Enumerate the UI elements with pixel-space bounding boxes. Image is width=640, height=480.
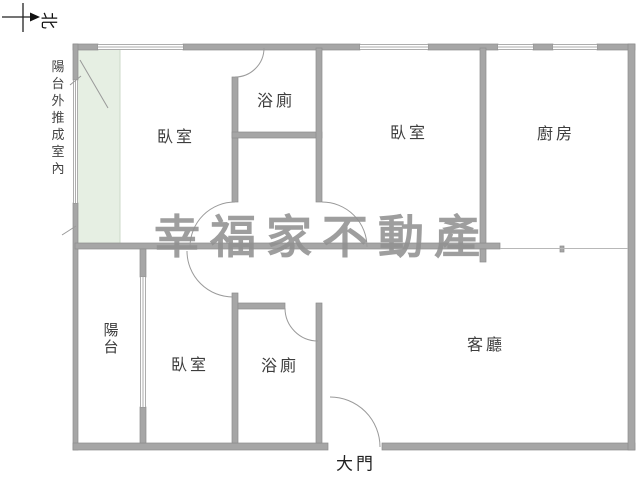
agency-watermark: 幸福家不動產 bbox=[154, 214, 490, 260]
green-area bbox=[78, 50, 120, 243]
bathroom-bottom-door-arc bbox=[285, 308, 318, 341]
room-label-bedroom-top-left: 臥室 bbox=[157, 130, 195, 146]
room-label-balcony: 陽台 bbox=[103, 323, 119, 357]
room-label-bathroom-bottom: 浴廁 bbox=[261, 359, 299, 375]
room-label-bedroom-top-right: 臥室 bbox=[390, 126, 428, 142]
compass-icon bbox=[2, 3, 40, 32]
room-label-bathroom-top: 浴廁 bbox=[257, 94, 295, 110]
main-door-label: 大門 bbox=[336, 456, 376, 473]
room-label-kitchen: 廚房 bbox=[537, 127, 575, 143]
room-label-bedroom-bottom: 臥室 bbox=[171, 358, 209, 374]
main-door-arc bbox=[330, 397, 380, 447]
balcony-conversion-note: 陽台外推成室內 bbox=[51, 58, 65, 177]
bathroom-top-door-arc bbox=[235, 48, 264, 77]
floorplan: 北 陽台外推成室內 臥室 浴廁 臥室 廚房 陽台 臥室 浴廁 客廳 大門 幸福家… bbox=[0, 0, 640, 480]
room-label-living-room: 客廳 bbox=[467, 338, 505, 354]
north-label: 北 bbox=[38, 12, 63, 29]
